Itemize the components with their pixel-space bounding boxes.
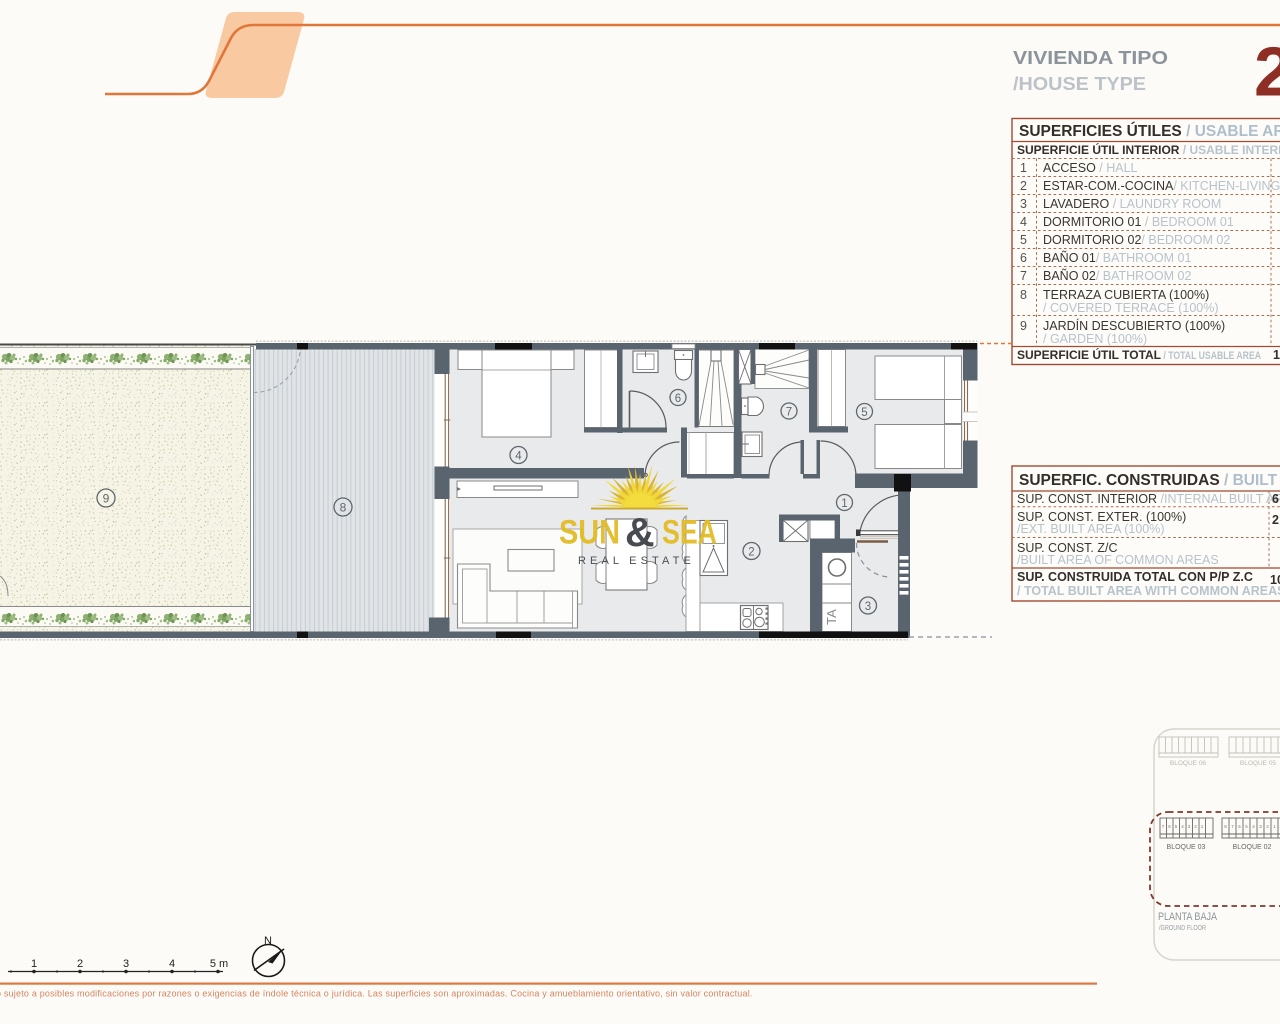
svg-text:/BUILT AREA OF COMMON AREAS: /BUILT AREA OF COMMON AREAS — [1017, 553, 1219, 567]
svg-text:2: 2 — [77, 958, 83, 970]
svg-text:6: 6 — [675, 393, 681, 405]
svg-text:SUPERFICIE ÚTIL INTERIOR / USA: SUPERFICIE ÚTIL INTERIOR / USABLE INTERN… — [1017, 142, 1280, 157]
svg-text:5 m: 5 m — [210, 958, 228, 970]
svg-text:/EXT. BUILT AREA (100%): /EXT. BUILT AREA (100%) — [1017, 522, 1165, 536]
svg-text:BLOQUE 02: BLOQUE 02 — [1233, 844, 1272, 851]
svg-text:DORMITORIO 01 / BEDROOM 01: DORMITORIO 01 / BEDROOM 01 — [1043, 215, 1234, 229]
svg-text:BLOQUE 06: BLOQUE 06 — [1170, 760, 1207, 767]
svg-text:2: 2 — [1272, 513, 1279, 527]
svg-text:LAVADERO / LAUNDRY ROOM: LAVADERO / LAUNDRY ROOM — [1043, 197, 1221, 211]
svg-text:6: 6 — [1020, 251, 1027, 265]
svg-text:&: & — [625, 509, 655, 555]
svg-text:SUP. CONSTRUIDA TOTAL CON P/P: SUP. CONSTRUIDA TOTAL CON P/P Z.C — [1017, 570, 1253, 584]
svg-text:BLOQUE 05: BLOQUE 05 — [1240, 760, 1277, 767]
svg-text:8: 8 — [1020, 288, 1027, 302]
svg-text:DORMITORIO 02/ BEDROOM 02: DORMITORIO 02/ BEDROOM 02 — [1043, 233, 1230, 247]
svg-text:SUP. CONST. INTERIOR /INTERNAL: SUP. CONST. INTERIOR /INTERNAL BUILT ARE… — [1017, 492, 1280, 506]
svg-text:/ GARDEN (100%): / GARDEN (100%) — [1043, 332, 1147, 346]
svg-text:BAÑO 02/ BATHROOM 02: BAÑO 02/ BATHROOM 02 — [1043, 269, 1191, 283]
svg-text:4: 4 — [1020, 215, 1027, 229]
svg-text:3: 3 — [123, 958, 129, 970]
svg-text:7: 7 — [786, 407, 792, 419]
svg-text:2: 2 — [1254, 33, 1280, 111]
svg-text:SUPERFICIES ÚTILES / USABLE AR: SUPERFICIES ÚTILES / USABLE AREA — [1019, 122, 1280, 140]
svg-text:/HOUSE TYPE: /HOUSE TYPE — [1013, 73, 1146, 94]
svg-text:REALESTATE: REALESTATE — [578, 555, 695, 567]
svg-text:TA: TA — [824, 609, 839, 625]
svg-text:3: 3 — [865, 601, 871, 613]
svg-text:8: 8 — [340, 501, 347, 515]
svg-text:2: 2 — [1020, 179, 1027, 193]
svg-text:VIVIENDA TIPO: VIVIENDA TIPO — [1013, 47, 1168, 68]
svg-text:6: 6 — [1272, 492, 1279, 506]
svg-text:ESTAR-COM.-COCINA/ KITCHEN-LIV: ESTAR-COM.-COCINA/ KITCHEN-LIVING — [1043, 179, 1280, 193]
svg-text:SUPERFICIE ÚTIL TOTAL / TOTAL: SUPERFICIE ÚTIL TOTAL / TOTAL USABLE ARE… — [1017, 347, 1261, 362]
svg-text:JARDÍN DESCUBIERTO (100%): JARDÍN DESCUBIERTO (100%) — [1043, 318, 1225, 333]
svg-text:2: 2 — [748, 547, 754, 559]
svg-text:BLOQUE 03: BLOQUE 03 — [1167, 844, 1206, 851]
svg-text:N: N — [264, 935, 272, 947]
svg-text:SUPERFIC. CONSTRUIDAS / BUILT: SUPERFIC. CONSTRUIDAS / BUILT A — [1019, 472, 1280, 489]
svg-text:5: 5 — [861, 407, 867, 419]
svg-text:ACCESO / HALL: ACCESO / HALL — [1043, 161, 1138, 175]
svg-text:9: 9 — [1020, 319, 1027, 333]
svg-text:12: 12 — [1273, 348, 1280, 362]
svg-text:4: 4 — [169, 958, 175, 970]
svg-text:1: 1 — [1020, 161, 1027, 175]
svg-text:1: 1 — [31, 958, 37, 970]
svg-text:/GROUND FLOOR: /GROUND FLOOR — [1159, 925, 1206, 932]
svg-text:PLANTA BAJA: PLANTA BAJA — [1158, 911, 1218, 923]
svg-text:10: 10 — [1270, 573, 1280, 587]
svg-text:TERRAZA CUBIERTA (100%): TERRAZA CUBIERTA (100%) — [1043, 288, 1209, 302]
svg-text:/ TOTAL BUILT AREA WITH COMMON: / TOTAL BUILT AREA WITH COMMON AREAS — [1017, 584, 1280, 598]
svg-text:SEA: SEA — [662, 514, 717, 552]
svg-text:3: 3 — [1020, 197, 1027, 211]
svg-text:9: 9 — [103, 492, 110, 506]
svg-text:1: 1 — [841, 498, 847, 510]
svg-text:SUN: SUN — [559, 514, 620, 552]
svg-text:7: 7 — [1020, 269, 1027, 283]
svg-text:o sujeto a posibles modificaci: o sujeto a posibles modificaciones por r… — [0, 989, 753, 999]
svg-text:5: 5 — [1020, 233, 1027, 247]
svg-text:4: 4 — [515, 451, 522, 463]
svg-text:BAÑO 01/ BATHROOM 01: BAÑO 01/ BATHROOM 01 — [1043, 251, 1191, 265]
svg-text:/ COVERED TERRACE (100%): / COVERED TERRACE (100%) — [1043, 301, 1219, 315]
